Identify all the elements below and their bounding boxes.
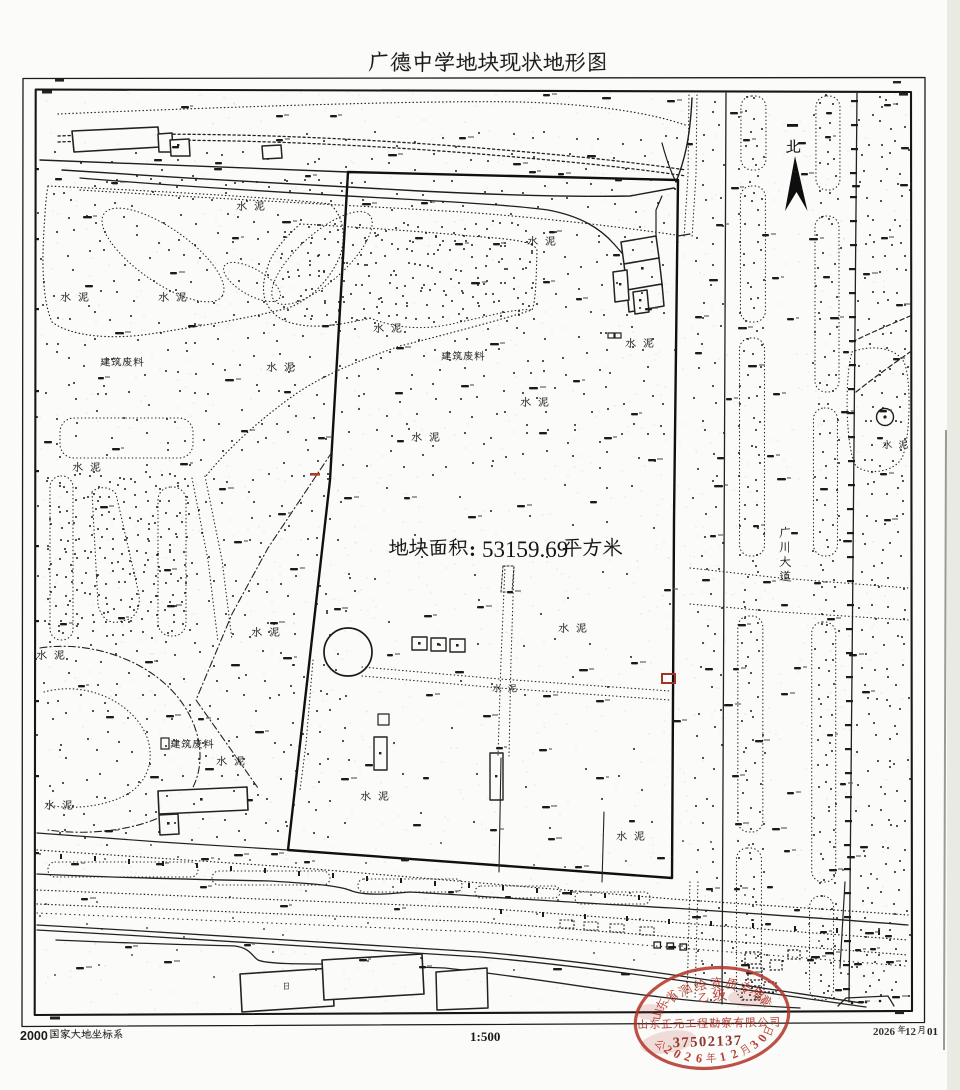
svg-text:12: 12 <box>905 1026 917 1038</box>
svg-text:1:500: 1:500 <box>470 1029 500 1044</box>
svg-text:2000: 2000 <box>20 1029 48 1043</box>
svg-text::: : <box>469 537 476 561</box>
svg-text:53159.69: 53159.69 <box>482 537 568 562</box>
svg-text:2026: 2026 <box>873 1026 896 1038</box>
svg-text:01: 01 <box>927 1026 938 1038</box>
